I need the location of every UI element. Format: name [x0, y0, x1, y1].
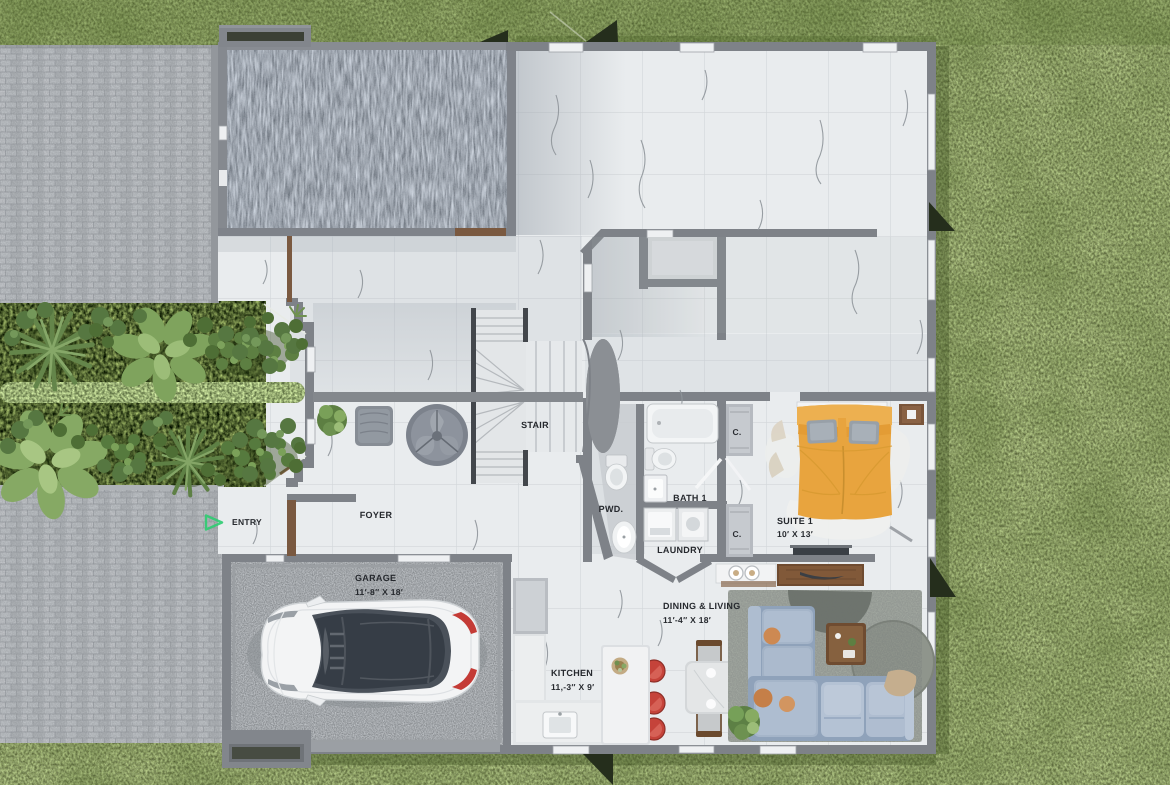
- svg-text:11′-8″ X 18′: 11′-8″ X 18′: [355, 587, 403, 597]
- svg-text:PWD.: PWD.: [599, 504, 624, 514]
- svg-text:C.: C.: [732, 529, 741, 539]
- svg-text:STAIR: STAIR: [521, 420, 549, 430]
- svg-text:10′ X 13′: 10′ X 13′: [777, 529, 813, 539]
- svg-text:11,-3″ X 9′: 11,-3″ X 9′: [551, 682, 594, 692]
- svg-text:KITCHEN: KITCHEN: [551, 668, 593, 678]
- svg-text:GARAGE: GARAGE: [355, 573, 396, 583]
- svg-text:BATH 1: BATH 1: [673, 493, 707, 503]
- svg-text:11′-4″ X 18′: 11′-4″ X 18′: [663, 615, 711, 625]
- svg-text:ENTRY: ENTRY: [232, 517, 262, 527]
- svg-text:SUITE 1: SUITE 1: [777, 516, 813, 526]
- svg-text:C.: C.: [732, 427, 741, 437]
- svg-text:LAUNDRY: LAUNDRY: [657, 545, 703, 555]
- svg-text:FOYER: FOYER: [360, 510, 393, 520]
- svg-text:DINING & LIVING: DINING & LIVING: [663, 601, 741, 611]
